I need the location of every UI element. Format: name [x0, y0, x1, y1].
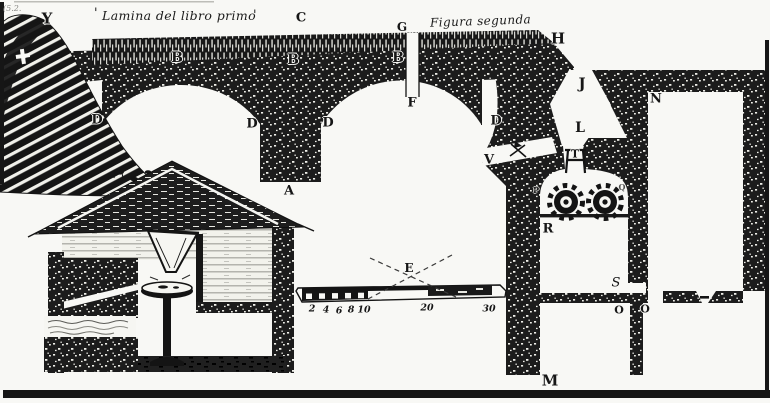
label-V: V — [484, 154, 494, 167]
drop-pipe — [406, 33, 419, 97]
caption-tick-right: ' — [253, 8, 257, 23]
label-D4: D — [490, 115, 501, 128]
label-Q: Q — [619, 183, 626, 191]
label-R: R — [543, 223, 554, 236]
label-L: L — [575, 121, 585, 135]
scale-tick-20: 20 — [420, 303, 433, 314]
label-D1: D — [91, 114, 102, 127]
label-N: N — [650, 93, 662, 106]
caption-tick-left: ' — [94, 6, 98, 21]
scale-tick-8: 8 — [348, 305, 355, 316]
label-J: J — [578, 77, 585, 92]
scale-tick-10: 10 — [357, 305, 370, 316]
page-corner-note: (5.2. — [3, 4, 21, 13]
label-B2: B — [287, 53, 299, 67]
label-D3: D — [322, 117, 333, 130]
label-O1: O — [614, 305, 624, 316]
label-C: C — [296, 12, 306, 25]
scale-tick-4: 4 — [323, 305, 330, 316]
label-S: S — [612, 277, 621, 290]
scale-tick-6: 6 — [336, 306, 343, 317]
label-F: F — [407, 97, 416, 110]
label-Y: Y — [42, 12, 53, 27]
label-E: E — [404, 262, 413, 274]
label-B3: B — [392, 51, 404, 65]
plate-caption: Lamina del libro primo — [102, 8, 256, 23]
label-A: A — [284, 185, 294, 198]
label-D2: D — [246, 118, 257, 131]
scale-tick-2: 2 — [309, 304, 316, 315]
mill-shaft — [163, 294, 171, 356]
label-O2: O — [640, 304, 650, 315]
scale-bar — [296, 285, 506, 302]
label-H: H — [551, 32, 565, 47]
engraving-drawing — [0, 0, 770, 403]
label-P: P — [533, 186, 539, 194]
label-M: M — [542, 374, 559, 389]
label-G: G — [397, 21, 407, 33]
label-B1: B — [171, 51, 183, 65]
label-T: T — [571, 149, 579, 160]
scale-tick-30: 30 — [482, 304, 495, 315]
scanned-engraving-plate: (5.2. ' Lamina del libro primo ' Figura … — [0, 0, 770, 403]
